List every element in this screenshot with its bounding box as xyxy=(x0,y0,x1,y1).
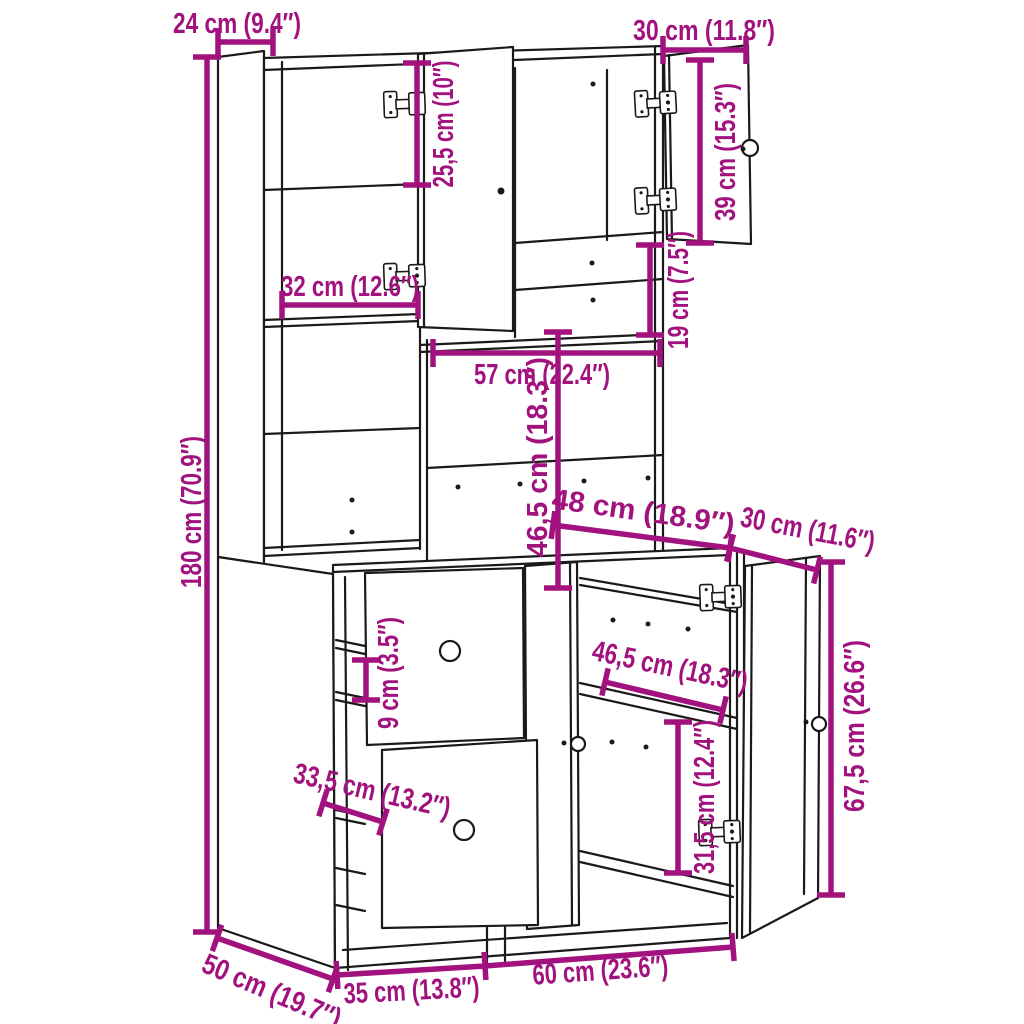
dim-label-top-depth: 24 cm (9.4″) xyxy=(173,8,301,40)
dim-label-base-top-depth: 30 cm (11.6″) xyxy=(738,501,878,558)
dim-total-height: 180 cm (70.9″) xyxy=(176,57,221,932)
dim-label-base-right-height: 67,5 cm (26.6″) xyxy=(839,640,871,812)
door-handle-dot xyxy=(498,188,505,195)
dim-label-upper-door-height: 25,5 cm (10″) xyxy=(428,60,460,187)
dim-label-right-compartment-height: 19 cm (7.5″) xyxy=(663,231,695,349)
furniture-dimension-diagram: 24 cm (9.4″) 30 cm (11.8″) 25,5 cm (10″)… xyxy=(0,0,1024,1024)
dim-label-base-shelf-height: 31,5 cm (12.4″) xyxy=(689,720,721,874)
door-knob xyxy=(812,717,826,731)
dim-label-base-left-width: 35 cm (13.8″) xyxy=(343,971,480,1010)
diagram-canvas: 24 cm (9.4″) 30 cm (11.8″) 25,5 cm (10″)… xyxy=(0,0,1024,1024)
lower-drawer-front xyxy=(382,740,538,928)
door-knob xyxy=(571,737,585,751)
dim-label-base-right-width: 60 cm (23.6″) xyxy=(531,950,669,991)
dim-label-total-height: 180 cm (70.9″) xyxy=(176,436,208,588)
dim-label-drawer-height: 9 cm (3.5″) xyxy=(373,617,405,729)
dim-label-right-door-height: 39 cm (15.3″) xyxy=(710,83,742,221)
tall-side-panel xyxy=(218,51,264,564)
dim-label-left-compartment-width: 32 cm (12.6″) xyxy=(281,271,419,303)
dim-label-niche-height: 46,5 cm (18.3″) xyxy=(522,357,554,557)
dim-top-depth: 24 cm (9.4″) xyxy=(173,8,301,56)
dim-label-top-right-door-width: 30 cm (11.8″) xyxy=(633,15,775,47)
base-right-door xyxy=(742,556,820,938)
